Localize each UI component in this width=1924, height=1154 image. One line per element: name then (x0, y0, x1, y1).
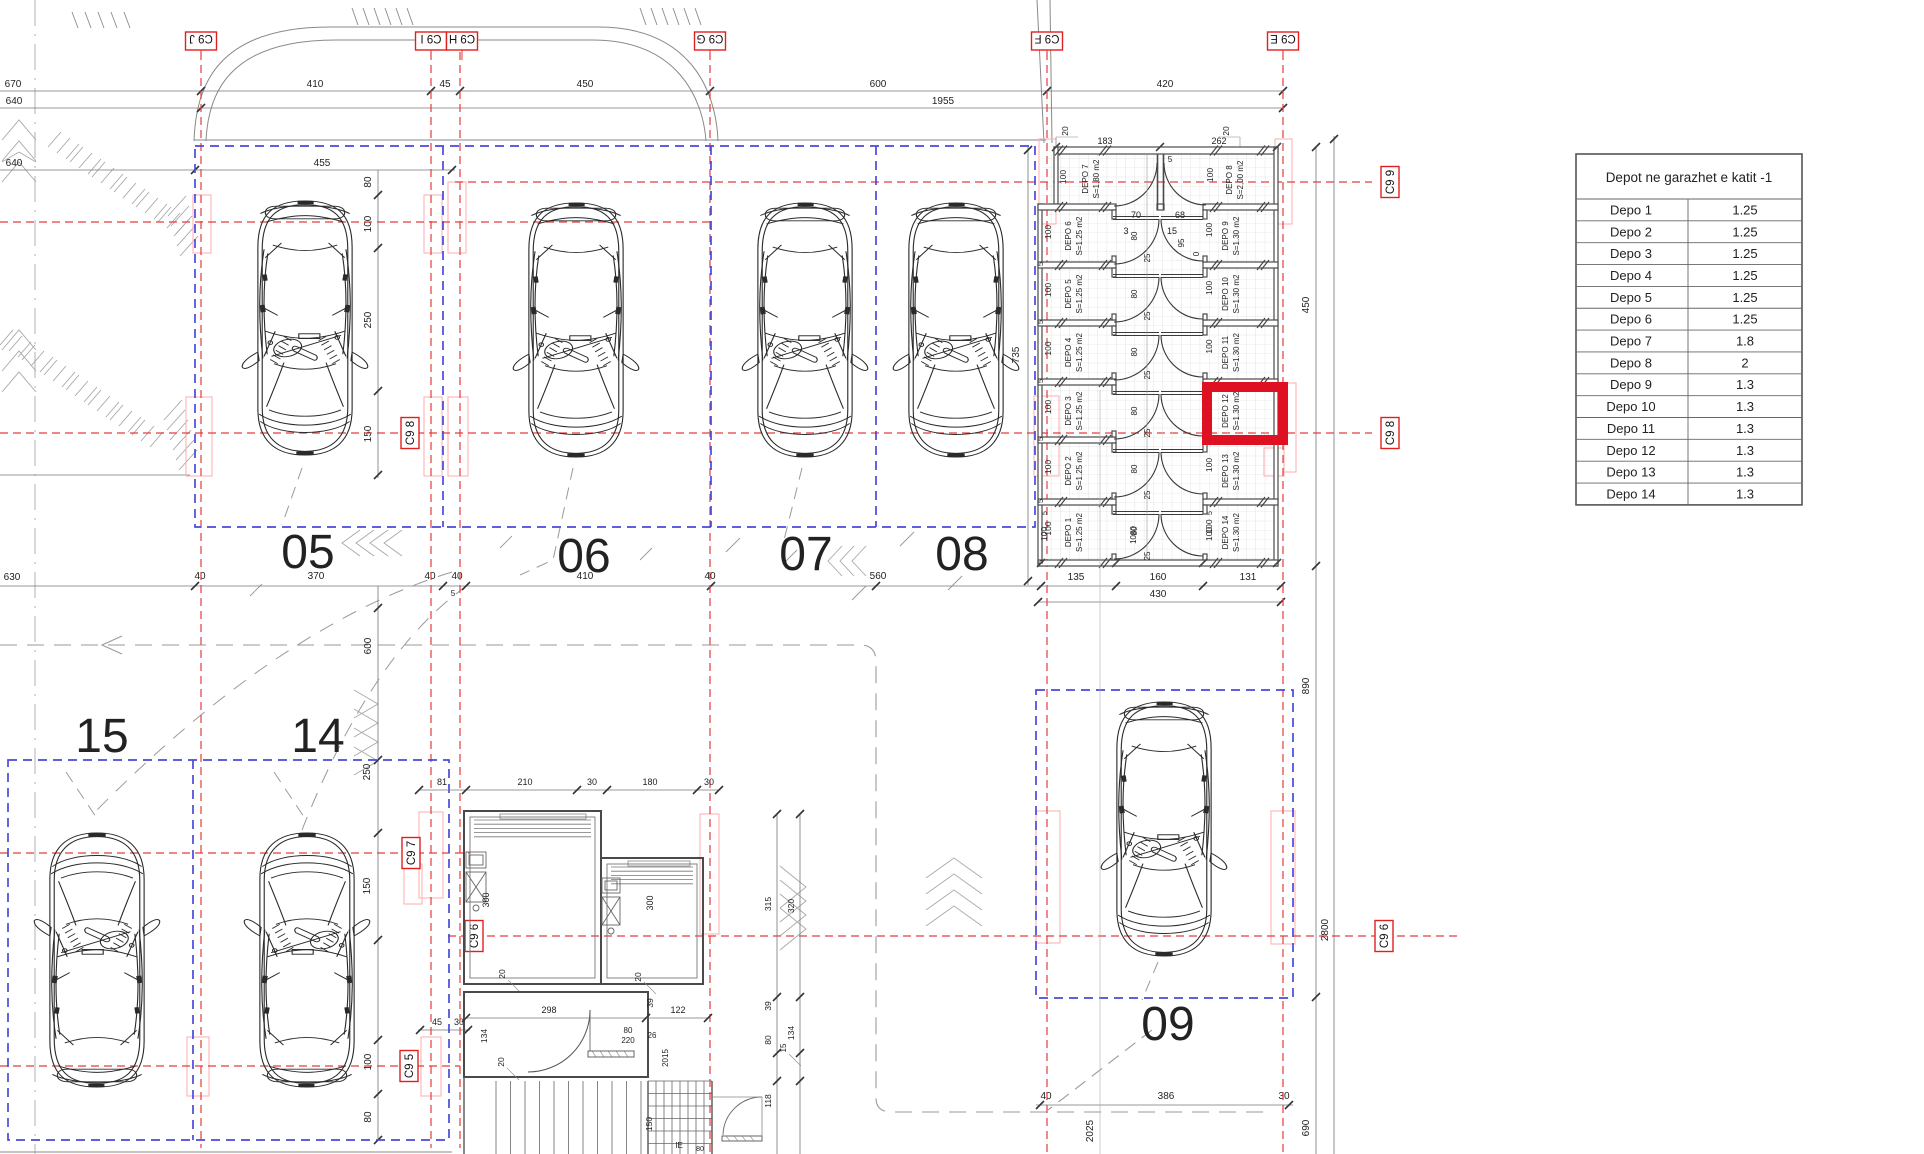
svg-text:3: 3 (1123, 226, 1128, 236)
svg-text:250: 250 (362, 763, 373, 780)
svg-text:420: 420 (1157, 79, 1174, 90)
svg-text:134: 134 (479, 1029, 489, 1043)
svg-text:2: 2 (1741, 355, 1748, 370)
svg-text:150: 150 (362, 877, 373, 894)
svg-text:890: 890 (1301, 677, 1312, 694)
svg-text:40: 40 (1040, 1091, 1052, 1102)
svg-text:80: 80 (1130, 464, 1139, 473)
svg-text:2025: 2025 (1085, 1119, 1096, 1142)
svg-text:150: 150 (363, 425, 374, 442)
svg-text:15: 15 (1167, 226, 1177, 236)
svg-text:70: 70 (1131, 210, 1141, 220)
svg-text:560: 560 (870, 571, 887, 582)
svg-text:5: 5 (1038, 320, 1045, 324)
svg-text:S=1.30 m2: S=1.30 m2 (1232, 391, 1241, 430)
svg-text:Depo 1: Depo 1 (1610, 202, 1652, 217)
svg-text:DEPO 3: DEPO 3 (1064, 396, 1073, 426)
svg-text:DEPO 14: DEPO 14 (1221, 515, 1230, 549)
svg-text:C9 H: C9 H (449, 32, 475, 44)
svg-text:455: 455 (314, 158, 331, 169)
svg-text:S=1.30 m2: S=1.30 m2 (1232, 274, 1241, 313)
svg-text:C9 6: C9 6 (1379, 924, 1391, 948)
svg-text:C9 6: C9 6 (469, 924, 481, 948)
svg-text:DEPO 4: DEPO 4 (1064, 337, 1073, 367)
svg-text:430: 430 (1150, 589, 1167, 600)
svg-text:Depo 3: Depo 3 (1610, 246, 1652, 261)
svg-text:5: 5 (1038, 499, 1045, 503)
svg-text:C9 9: C9 9 (1385, 170, 1397, 194)
svg-text:100: 100 (1043, 225, 1053, 239)
svg-text:122: 122 (670, 1005, 685, 1015)
svg-text:135: 135 (1068, 572, 1085, 583)
svg-text:5: 5 (1207, 511, 1214, 515)
svg-text:1.3: 1.3 (1736, 377, 1754, 392)
svg-text:410: 410 (307, 79, 324, 90)
svg-text:80: 80 (363, 176, 374, 188)
svg-text:450: 450 (1301, 296, 1312, 313)
svg-text:DEPO 6: DEPO 6 (1064, 221, 1073, 251)
svg-text:210: 210 (517, 777, 532, 787)
svg-text:80: 80 (1130, 289, 1139, 298)
svg-text:20: 20 (1060, 126, 1070, 136)
svg-text:1080: 1080 (1129, 526, 1138, 544)
svg-text:20: 20 (497, 969, 507, 979)
svg-text:S=1.25 m2: S=1.25 m2 (1075, 216, 1084, 255)
svg-text:DEPO 11: DEPO 11 (1221, 335, 1230, 369)
svg-text:450: 450 (577, 79, 594, 90)
svg-text:100: 100 (1204, 339, 1214, 353)
svg-text:39: 39 (763, 1001, 773, 1011)
svg-text:DEPO 1: DEPO 1 (1064, 517, 1073, 547)
svg-text:S=1.25 m2: S=1.25 m2 (1075, 391, 1084, 430)
svg-text:20: 20 (1221, 126, 1231, 136)
svg-text:300: 300 (481, 892, 491, 907)
svg-text:630: 630 (4, 572, 21, 583)
svg-text:298: 298 (541, 1005, 556, 1015)
svg-text:Depo 7: Depo 7 (1610, 334, 1652, 349)
svg-text:300: 300 (645, 895, 655, 910)
svg-text:Depo 8: Depo 8 (1610, 355, 1652, 370)
svg-text:39: 39 (645, 998, 655, 1008)
svg-text:25: 25 (1143, 253, 1152, 262)
svg-text:95: 95 (1177, 238, 1186, 247)
svg-text:C9 8: C9 8 (1385, 421, 1397, 445)
svg-text:131: 131 (1240, 572, 1257, 583)
svg-text:1955: 1955 (932, 96, 955, 107)
svg-text:118: 118 (763, 1094, 773, 1108)
svg-text:100: 100 (1039, 527, 1049, 541)
svg-text:80: 80 (1130, 347, 1139, 356)
svg-text:25: 25 (1143, 311, 1152, 320)
svg-text:80: 80 (696, 1146, 704, 1153)
svg-text:Depo 13: Depo 13 (1606, 465, 1655, 480)
svg-text:30: 30 (704, 777, 714, 787)
svg-text:Depo 10: Depo 10 (1606, 399, 1655, 414)
svg-text:14: 14 (291, 710, 344, 763)
svg-text:100: 100 (1204, 281, 1214, 295)
svg-text:07: 07 (779, 528, 832, 581)
svg-text:25: 25 (1143, 370, 1152, 379)
svg-text:S=1.80 m2: S=1.80 m2 (1092, 159, 1101, 198)
svg-text:S=1.30 m2: S=1.30 m2 (1232, 512, 1241, 551)
svg-text:Depo 4: Depo 4 (1610, 268, 1652, 283)
svg-text:1.3: 1.3 (1736, 399, 1754, 414)
svg-text:2015: 2015 (661, 1049, 670, 1067)
svg-text:315: 315 (763, 897, 773, 911)
svg-text:15: 15 (779, 1043, 788, 1052)
svg-text:640: 640 (6, 96, 23, 107)
svg-text:80: 80 (1130, 406, 1139, 415)
svg-text:S=1.30 m2: S=1.30 m2 (1232, 332, 1241, 371)
svg-text:45: 45 (439, 79, 451, 90)
svg-text:1.8: 1.8 (1736, 334, 1754, 349)
svg-text:DEPO 2: DEPO 2 (1064, 456, 1073, 486)
svg-text:DEPO 8: DEPO 8 (1225, 165, 1234, 195)
svg-text:08: 08 (935, 528, 988, 581)
svg-text:80: 80 (763, 1035, 773, 1045)
svg-text:C9 G: C9 G (697, 32, 724, 44)
svg-text:20: 20 (496, 1057, 506, 1067)
svg-text:C9 F: C9 F (1035, 32, 1060, 44)
svg-text:Depo 9: Depo 9 (1610, 377, 1652, 392)
svg-text:C9 7: C9 7 (406, 841, 418, 865)
svg-text:690: 690 (1301, 1119, 1312, 1136)
svg-text:Depo 2: Depo 2 (1610, 224, 1652, 239)
svg-text:IE: IE (675, 1141, 683, 1150)
svg-text:100: 100 (1043, 341, 1053, 355)
svg-text:1.25: 1.25 (1732, 246, 1757, 261)
svg-text:DEPO 12: DEPO 12 (1221, 394, 1230, 428)
svg-text:DEPO 5: DEPO 5 (1064, 279, 1073, 309)
svg-text:26: 26 (648, 1031, 657, 1040)
svg-text:1.25: 1.25 (1732, 290, 1757, 305)
svg-text:1.25: 1.25 (1732, 224, 1757, 239)
svg-text:100: 100 (363, 1053, 374, 1070)
svg-text:600: 600 (870, 79, 887, 90)
svg-text:80: 80 (624, 1026, 633, 1035)
svg-text:30: 30 (1278, 1091, 1290, 1102)
svg-text:DEPO 7: DEPO 7 (1081, 164, 1090, 194)
svg-text:1.3: 1.3 (1736, 465, 1754, 480)
svg-text:Depo 5: Depo 5 (1610, 290, 1652, 305)
svg-text:25: 25 (1143, 428, 1152, 437)
svg-text:S=1.25 m2: S=1.25 m2 (1075, 451, 1084, 490)
svg-text:30: 30 (587, 777, 597, 787)
svg-text:1.3: 1.3 (1736, 443, 1754, 458)
svg-text:DEPO 13: DEPO 13 (1221, 454, 1230, 488)
svg-text:DEPO 10: DEPO 10 (1221, 277, 1230, 311)
svg-text:5: 5 (1038, 379, 1045, 383)
svg-text:183: 183 (1097, 136, 1112, 146)
svg-text:Depot ne garazhet e katit -1: Depot ne garazhet e katit -1 (1606, 170, 1773, 185)
svg-text:80: 80 (363, 1111, 374, 1123)
svg-text:06: 06 (557, 530, 610, 583)
svg-text:Depo 6: Depo 6 (1610, 312, 1652, 327)
svg-text:100: 100 (1043, 283, 1053, 297)
svg-text:134: 134 (786, 1026, 796, 1040)
svg-text:S=1.30 m2: S=1.30 m2 (1232, 451, 1241, 490)
svg-text:C9 8: C9 8 (405, 421, 417, 445)
svg-text:05: 05 (281, 526, 334, 579)
svg-text:1.25: 1.25 (1732, 268, 1757, 283)
svg-text:150: 150 (644, 1117, 654, 1131)
svg-text:320: 320 (786, 899, 796, 913)
svg-text:262: 262 (1211, 136, 1226, 146)
svg-text:100: 100 (1204, 223, 1214, 237)
svg-text:1.25: 1.25 (1732, 312, 1757, 327)
svg-text:45: 45 (432, 1017, 442, 1027)
svg-text:670: 670 (5, 79, 22, 90)
svg-text:Depo 14: Depo 14 (1606, 486, 1655, 501)
svg-text:250: 250 (363, 311, 374, 328)
svg-text:0: 0 (1192, 251, 1201, 256)
svg-text:20: 20 (633, 972, 643, 982)
svg-text:S=1.25 m2: S=1.25 m2 (1075, 332, 1084, 371)
svg-text:C9 I: C9 I (420, 32, 441, 44)
svg-text:100: 100 (1204, 527, 1214, 541)
svg-text:1.3: 1.3 (1736, 421, 1754, 436)
svg-text:C9 5: C9 5 (404, 1054, 416, 1078)
svg-text:C9 J: C9 J (189, 32, 213, 44)
svg-text:1.25: 1.25 (1732, 202, 1757, 217)
svg-text:600: 600 (363, 637, 374, 654)
svg-text:100: 100 (1043, 460, 1053, 474)
svg-text:25: 25 (1143, 490, 1152, 499)
svg-text:1.3: 1.3 (1736, 486, 1754, 501)
svg-text:386: 386 (1158, 1091, 1175, 1102)
svg-text:40: 40 (451, 571, 463, 582)
svg-text:735: 735 (1011, 346, 1022, 363)
svg-text:40: 40 (194, 571, 206, 582)
svg-text:81: 81 (437, 777, 447, 787)
svg-text:S=1.25 m2: S=1.25 m2 (1075, 512, 1084, 551)
svg-text:100: 100 (363, 215, 374, 232)
svg-text:Depo 12: Depo 12 (1606, 443, 1655, 458)
svg-text:5: 5 (1168, 155, 1173, 164)
svg-text:5: 5 (1038, 262, 1045, 266)
svg-text:68: 68 (1175, 210, 1185, 220)
svg-text:5: 5 (1042, 511, 1049, 515)
svg-text:180: 180 (642, 777, 657, 787)
svg-text:160: 160 (1150, 572, 1167, 583)
svg-text:100: 100 (1205, 168, 1215, 182)
svg-text:15: 15 (75, 710, 128, 763)
svg-text:S=1.30 m2: S=1.30 m2 (1232, 216, 1241, 255)
svg-text:220: 220 (621, 1036, 635, 1045)
svg-text:40: 40 (424, 571, 436, 582)
svg-text:25: 25 (1143, 551, 1152, 560)
svg-text:5: 5 (1038, 437, 1045, 441)
svg-text:100: 100 (1204, 458, 1214, 472)
svg-text:Depo 11: Depo 11 (1607, 421, 1655, 436)
svg-text:S=1.25 m2: S=1.25 m2 (1075, 274, 1084, 313)
svg-text:100: 100 (1058, 170, 1068, 184)
svg-text:S=2,00 m2: S=2,00 m2 (1236, 160, 1245, 199)
svg-text:100: 100 (1043, 400, 1053, 414)
svg-text:640: 640 (6, 158, 23, 169)
svg-text:09: 09 (1141, 998, 1194, 1051)
svg-text:C9 E: C9 E (1270, 32, 1296, 44)
svg-text:5: 5 (451, 589, 456, 598)
svg-text:80: 80 (1130, 231, 1139, 240)
svg-text:2800: 2800 (1320, 918, 1331, 941)
svg-text:DEPO 9: DEPO 9 (1221, 221, 1230, 251)
